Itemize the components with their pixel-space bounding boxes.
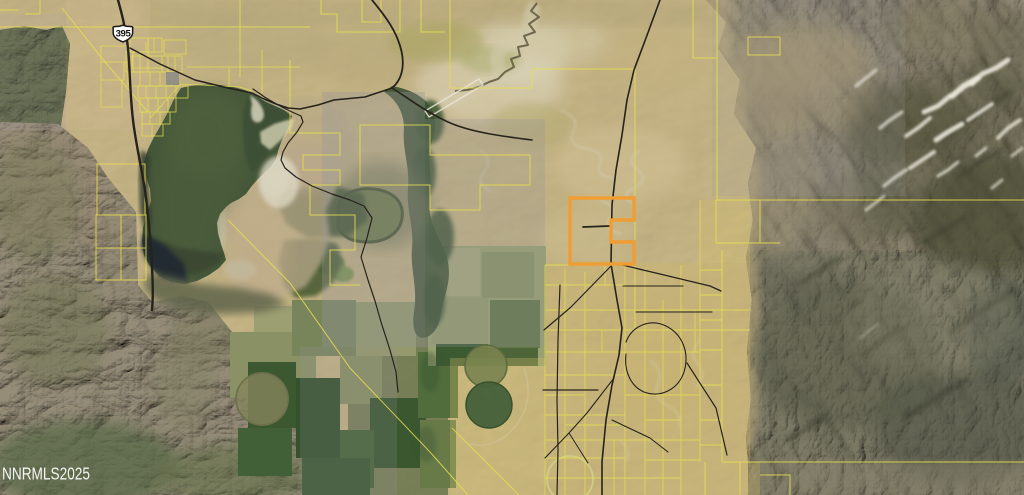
- svg-text:NNRMLS2025: NNRMLS2025: [2, 465, 90, 484]
- svg-text:395: 395: [116, 29, 132, 40]
